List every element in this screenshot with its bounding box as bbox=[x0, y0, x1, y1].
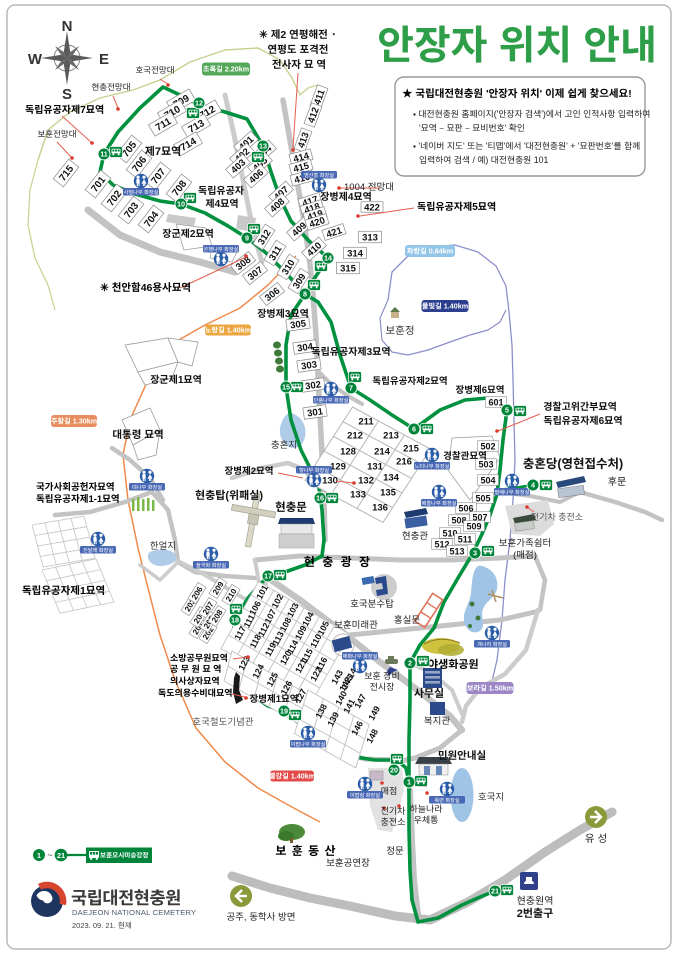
svg-text:충혼당(영현접수처): 충혼당(영현접수처) bbox=[523, 453, 623, 472]
svg-text:야생화공원: 야생화공원 bbox=[428, 656, 479, 672]
svg-text:1: 1 bbox=[37, 850, 41, 861]
svg-text:현충관: 현충관 bbox=[402, 528, 428, 542]
svg-text:매점: 매점 bbox=[381, 784, 398, 797]
svg-text:214: 214 bbox=[374, 443, 391, 457]
svg-text:16: 16 bbox=[316, 494, 324, 504]
svg-text:장병제3묘역: 장병제3묘역 bbox=[257, 305, 309, 320]
svg-text:안장자 위치 안내: 안장자 위치 안내 bbox=[377, 13, 657, 71]
svg-text:8: 8 bbox=[303, 290, 307, 300]
svg-text:5: 5 bbox=[505, 406, 509, 416]
svg-text:팔배나무 화장실: 팔배나무 화장실 bbox=[495, 489, 530, 496]
svg-text:복지관: 복지관 bbox=[424, 713, 450, 727]
svg-text:133: 133 bbox=[350, 486, 366, 500]
svg-text:• '네이버 지도' 또는 '티맵'에서 '대전현충원' +: • '네이버 지도' 또는 '티맵'에서 '대전현충원' + '묘판번호'를 함… bbox=[413, 139, 640, 152]
svg-text:17: 17 bbox=[264, 572, 272, 582]
svg-text:212: 212 bbox=[347, 427, 363, 441]
svg-text:전시장: 전시장 bbox=[370, 680, 395, 693]
svg-text:9: 9 bbox=[245, 234, 249, 244]
svg-text:20: 20 bbox=[390, 766, 398, 776]
svg-text:제4묘역: 제4묘역 bbox=[205, 195, 238, 210]
svg-text:135: 135 bbox=[380, 484, 397, 498]
svg-text:주황길 1.30km: 주황길 1.30km bbox=[51, 417, 97, 427]
svg-text:136: 136 bbox=[372, 499, 388, 513]
svg-text:독립유공자제3묘역: 독립유공자제3묘역 bbox=[311, 343, 390, 358]
svg-text:공주, 동학사 방면: 공주, 동학사 방면 bbox=[226, 909, 295, 923]
svg-text:✳ 제2 연평해전 ·: ✳ 제2 연평해전 · bbox=[259, 27, 337, 42]
svg-text:들국화 화장실: 들국화 화장실 bbox=[196, 562, 226, 569]
svg-text:입력하여 검색 / 예) 대전현충원 101: 입력하여 검색 / 예) 대전현충원 101 bbox=[419, 153, 548, 166]
svg-text:독도의용수비대묘역: 독도의용수비대묘역 bbox=[158, 686, 233, 699]
svg-text:21: 21 bbox=[491, 887, 499, 897]
svg-text:호국전망대: 호국전망대 bbox=[135, 64, 174, 76]
svg-text:독립유공자제6묘역: 독립유공자제6묘역 bbox=[543, 412, 622, 427]
svg-text:10: 10 bbox=[177, 200, 185, 210]
svg-text:전기차 충전소: 전기차 충전소 bbox=[531, 510, 583, 523]
svg-text:전사자 묘 역: 전사자 묘 역 bbox=[272, 57, 326, 72]
svg-text:제7묘역: 제7묘역 bbox=[145, 143, 181, 159]
svg-text:호국철도기념관: 호국철도기념관 bbox=[192, 714, 253, 728]
svg-text:4: 4 bbox=[531, 481, 535, 491]
svg-text:민원안내실: 민원안내실 bbox=[438, 748, 486, 763]
svg-text:215: 215 bbox=[403, 440, 420, 454]
svg-text:302: 302 bbox=[304, 376, 322, 392]
svg-text:현 충 광 장: 현 충 광 장 bbox=[304, 553, 372, 570]
svg-text:211: 211 bbox=[358, 413, 374, 427]
svg-text:601: 601 bbox=[488, 395, 503, 408]
svg-text:(매점): (매점) bbox=[513, 547, 537, 561]
svg-text:경찰고위간부묘역: 경찰고위간부묘역 bbox=[543, 398, 617, 413]
svg-text:빨강길 1.40km: 빨강길 1.40km bbox=[269, 772, 315, 782]
svg-text:21: 21 bbox=[57, 850, 65, 861]
svg-text:314: 314 bbox=[347, 245, 364, 259]
svg-text:장병제1묘역: 장병제1묘역 bbox=[250, 691, 299, 705]
svg-text:130: 130 bbox=[322, 472, 338, 486]
svg-text:★ 국립대전현충원 '안장자 위치' 이제 쉽게 찾으세요!: ★ 국립대전현충원 '안장자 위치' 이제 쉽게 찾으세요! bbox=[402, 86, 632, 101]
svg-text:사철나무 화장실: 사철나무 화장실 bbox=[124, 189, 159, 196]
svg-text:2: 2 bbox=[408, 659, 412, 669]
svg-text:2번출구: 2번출구 bbox=[517, 905, 553, 921]
svg-text:134: 134 bbox=[383, 469, 400, 483]
svg-text:✳ 천안함46용사묘역: ✳ 천안함46용사묘역 bbox=[100, 280, 191, 295]
svg-text:보훈모시미승강장: 보훈모시미승강장 bbox=[100, 850, 149, 860]
svg-text:213: 213 bbox=[383, 427, 399, 441]
svg-text:1004 전망대: 1004 전망대 bbox=[344, 179, 394, 193]
svg-text:129: 129 bbox=[330, 458, 346, 472]
svg-text:경찰관묘역: 경찰관묘역 bbox=[443, 448, 487, 462]
svg-text:우체통: 우체통 bbox=[414, 813, 439, 826]
svg-text:509: 509 bbox=[466, 519, 481, 532]
svg-text:매화나무 화장실: 매화나무 화장실 bbox=[343, 653, 378, 660]
svg-text:은행나무 화장실: 은행나무 화장실 bbox=[204, 246, 239, 253]
svg-text:대나무 화장실: 대나무 화장실 bbox=[132, 484, 162, 491]
svg-text:18: 18 bbox=[231, 616, 239, 626]
svg-text:이팝나무 화장실: 이팝나무 화장실 bbox=[291, 741, 326, 748]
svg-text:504: 504 bbox=[480, 473, 495, 486]
svg-text:현충전망대: 현충전망대 bbox=[91, 81, 130, 93]
svg-text:DAEJEON NATIONAL CEMETERY: DAEJEON NATIONAL CEMETERY bbox=[72, 907, 196, 918]
svg-text:목련 화장실: 목련 화장실 bbox=[434, 797, 460, 804]
svg-text:7: 7 bbox=[349, 384, 353, 394]
svg-text:301: 301 bbox=[306, 403, 324, 419]
svg-text:느티나무 화장실: 느티나무 화장실 bbox=[415, 463, 450, 470]
svg-text:128: 128 bbox=[340, 443, 356, 457]
svg-text:홍실문: 홍실문 bbox=[394, 612, 420, 626]
svg-text:정문: 정문 bbox=[386, 843, 404, 857]
svg-text:장병제6묘역: 장병제6묘역 bbox=[456, 382, 505, 396]
svg-text:노랑길 1.40km: 노랑길 1.40km bbox=[205, 326, 251, 336]
svg-text:현충탑(위패실): 현충탑(위패실) bbox=[195, 487, 263, 503]
svg-text:사무실: 사무실 bbox=[414, 685, 444, 701]
svg-text:3: 3 bbox=[473, 549, 477, 559]
svg-text:보라길 1.50km: 보라길 1.50km bbox=[467, 684, 513, 694]
svg-text:이팝힘 화장실: 이팝힘 화장실 bbox=[350, 792, 380, 799]
svg-text:513: 513 bbox=[449, 544, 464, 557]
svg-text:독립유공자제2묘역: 독립유공자제2묘역 bbox=[372, 373, 447, 387]
svg-text:E: E bbox=[99, 48, 109, 69]
svg-text:~: ~ bbox=[47, 848, 52, 861]
svg-text:호국지: 호국지 bbox=[478, 789, 504, 803]
svg-text:S: S bbox=[62, 83, 72, 104]
svg-text:12: 12 bbox=[195, 99, 203, 109]
svg-text:315: 315 bbox=[340, 260, 357, 274]
svg-text:313: 313 bbox=[362, 229, 378, 243]
svg-text:'묘역 – 묘판 – 묘비번호' 확인: '묘역 – 묘판 – 묘비번호' 확인 bbox=[419, 121, 525, 134]
svg-text:132: 132 bbox=[358, 472, 374, 486]
svg-text:11: 11 bbox=[100, 150, 108, 160]
svg-text:15: 15 bbox=[282, 383, 290, 393]
svg-text:장군제2묘역: 장군제2묘역 bbox=[162, 225, 214, 240]
svg-text:충전소: 충전소 bbox=[381, 815, 406, 828]
svg-text:단풍나무 화장실: 단풍나무 화장실 bbox=[314, 397, 349, 404]
svg-text:연평도 포격전: 연평도 포격전 bbox=[268, 42, 329, 57]
svg-text:14: 14 bbox=[324, 254, 332, 264]
svg-text:보훈미래관: 보훈미래관 bbox=[334, 617, 378, 631]
svg-text:개나리 화장실: 개나리 화장실 bbox=[477, 641, 507, 648]
svg-text:303: 303 bbox=[300, 356, 318, 372]
svg-text:13: 13 bbox=[259, 142, 267, 152]
svg-text:한얼지: 한얼지 bbox=[150, 538, 176, 552]
svg-text:독립유공자제5묘역: 독립유공자제5묘역 bbox=[417, 198, 496, 213]
svg-text:장군제1묘역: 장군제1묘역 bbox=[150, 371, 202, 386]
svg-text:초록길 2.20km: 초록길 2.20km bbox=[203, 65, 249, 75]
svg-text:505: 505 bbox=[475, 491, 490, 504]
svg-text:후문: 후문 bbox=[608, 473, 626, 488]
svg-text:19: 19 bbox=[280, 707, 288, 717]
svg-text:1: 1 bbox=[407, 778, 411, 788]
svg-text:보훈정: 보훈정 bbox=[386, 323, 415, 338]
svg-text:대통령 묘역: 대통령 묘역 bbox=[112, 427, 163, 442]
svg-text:보 훈 동 산: 보 훈 동 산 bbox=[275, 842, 336, 859]
svg-text:6: 6 bbox=[412, 425, 416, 435]
svg-text:유 성: 유 성 bbox=[585, 831, 607, 846]
svg-text:216: 216 bbox=[396, 453, 412, 467]
svg-text:W: W bbox=[28, 48, 43, 69]
svg-text:독립유공자제1-1묘역: 독립유공자제1-1묘역 bbox=[36, 491, 120, 505]
svg-text:2023. 09. 21. 현재: 2023. 09. 21. 현재 bbox=[72, 920, 132, 931]
svg-text:131: 131 bbox=[367, 458, 384, 472]
svg-text:영산홍 화장실: 영산홍 화장실 bbox=[304, 172, 334, 179]
svg-text:• 대전현충원 홈페이지('안장자 검색')에서 고인 인적: • 대전현충원 홈페이지('안장자 검색')에서 고인 인적사항 입력하여 bbox=[413, 107, 650, 120]
svg-text:배롱나무 화장실: 배롱나무 화장실 bbox=[422, 500, 457, 507]
svg-text:장병제2묘역: 장병제2묘역 bbox=[225, 463, 274, 477]
svg-text:현충문: 현충문 bbox=[275, 499, 307, 515]
svg-text:호국분수탑: 호국분수탑 bbox=[350, 596, 394, 610]
svg-text:향나무 화장실: 향나무 화장실 bbox=[299, 467, 329, 474]
svg-text:진달래 화장실: 진달래 화장실 bbox=[83, 547, 113, 554]
svg-text:파랑길 0.84km: 파랑길 0.84km bbox=[407, 247, 453, 257]
svg-text:독립유공자제1묘역: 독립유공자제1묘역 bbox=[22, 583, 105, 598]
svg-text:충혼지: 충혼지 bbox=[271, 437, 297, 451]
svg-text:보훈전망대: 보훈전망대 bbox=[37, 128, 76, 140]
svg-text:N: N bbox=[62, 15, 73, 36]
svg-text:풀빛길 1.40km: 풀빛길 1.40km bbox=[422, 302, 468, 312]
